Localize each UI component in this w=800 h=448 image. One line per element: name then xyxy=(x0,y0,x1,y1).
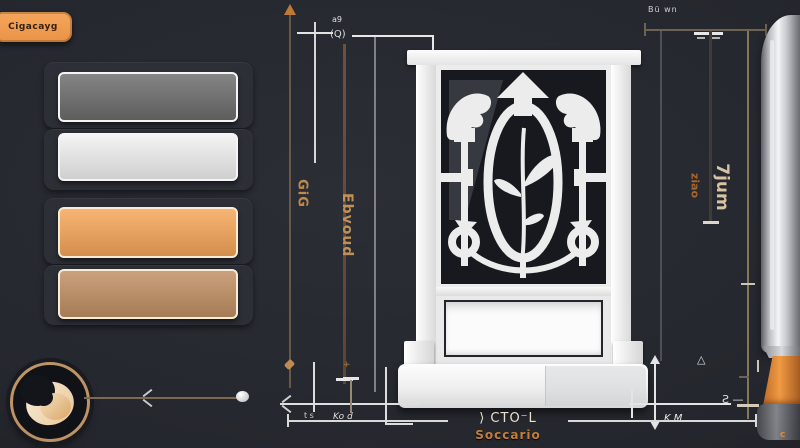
dimension-line-left-thin xyxy=(374,36,376,392)
dimension-bead xyxy=(284,359,295,370)
arrow-left-icon xyxy=(282,405,292,413)
triangle-glyph: △ xyxy=(697,353,705,366)
micro-annotation: c xyxy=(780,430,785,440)
door-mid-rail xyxy=(436,287,611,296)
stylus-highlight xyxy=(770,40,774,330)
swatch-bronze-tan[interactable] xyxy=(58,269,238,319)
dimension-line-right-outer xyxy=(747,31,749,419)
pilaster-base-right xyxy=(613,341,643,365)
dimension-tick xyxy=(697,37,705,39)
micro-annotation: Bü wn xyxy=(648,5,678,14)
dimension-line-vertical xyxy=(654,362,656,424)
arrow-left-icon xyxy=(282,395,292,403)
swatch-off-white[interactable] xyxy=(58,133,238,181)
design-canvas: Cigacayg GiG a9 (Q) Ebvoud xyxy=(0,0,800,448)
dimension-endcap xyxy=(644,23,646,36)
dimension-line-right-faint xyxy=(660,31,662,361)
door-glass-panel xyxy=(436,65,611,289)
dimension-tick xyxy=(343,377,359,380)
micro-annotation: a9 xyxy=(332,15,342,24)
micro-annotation: Ƨ — xyxy=(722,393,743,406)
swatch-apricot-orange[interactable] xyxy=(58,207,238,258)
dimension-tick xyxy=(313,362,315,412)
width-dimension-label: ⟩ CTO⁻L xyxy=(448,411,568,426)
dimension-tick xyxy=(741,283,755,285)
swatch-card xyxy=(44,62,253,128)
dimension-label-right-inner: ziao xyxy=(689,166,702,206)
dimension-line-top xyxy=(352,35,434,37)
door-ornament-svg xyxy=(441,70,606,284)
dimension-corner xyxy=(385,423,413,425)
dimension-tick xyxy=(757,360,759,372)
ornament-scrollwork xyxy=(441,72,606,278)
swatch-card xyxy=(44,198,253,264)
dimension-tick xyxy=(739,376,749,378)
dimension-label-left-inner: Ebvoud xyxy=(339,193,355,257)
dimension-endcap xyxy=(287,414,289,427)
arrow-down-icon xyxy=(650,421,660,430)
leader-line xyxy=(84,397,240,399)
width-dimension-sublabel: Soccario xyxy=(448,428,568,442)
dimension-tick xyxy=(703,221,719,224)
micro-annotation: K M xyxy=(664,413,682,424)
micro-annotation: + xyxy=(343,360,351,370)
dimension-tick xyxy=(385,367,387,425)
dimension-line-left-outer xyxy=(289,14,291,388)
dimension-tick xyxy=(297,32,333,34)
arrow-up-icon xyxy=(284,4,296,15)
dimension-tick xyxy=(631,390,633,418)
width-dimension-line-left xyxy=(288,420,448,422)
stylus-base xyxy=(757,404,800,440)
micro-annotation: t s xyxy=(304,411,314,420)
micro-annotation: (Q) xyxy=(330,29,346,40)
swatch-card xyxy=(44,265,253,325)
door-left-jamb xyxy=(416,65,436,365)
dimension-line-left-white xyxy=(314,22,316,163)
leader-arrow-icon xyxy=(143,399,153,407)
category-badge[interactable]: Cigacayg xyxy=(0,12,72,42)
leader-end-knob xyxy=(236,391,249,402)
swatch-card xyxy=(44,129,253,190)
dimension-tick xyxy=(712,37,720,39)
material-detail-callout[interactable] xyxy=(10,362,90,442)
swatch-slate-gray[interactable] xyxy=(58,72,238,122)
dimension-tick xyxy=(350,377,352,413)
width-dimension-line-right xyxy=(568,420,757,422)
door-lower-panel xyxy=(446,302,601,355)
arrow-up-icon xyxy=(650,355,660,364)
dimension-line-horizontal xyxy=(629,403,731,405)
door-right-jamb xyxy=(611,65,631,365)
stylus-grip xyxy=(763,356,800,406)
pilaster-base-left xyxy=(404,341,434,365)
dimension-label-right-outer: 7jum xyxy=(712,159,732,215)
door-top-cap xyxy=(407,50,641,65)
swirl-shape xyxy=(34,389,53,406)
leader-arrow-icon xyxy=(143,389,153,397)
dimension-label-left-outer: GiG xyxy=(295,176,310,212)
stylus-tool-body xyxy=(761,15,800,353)
